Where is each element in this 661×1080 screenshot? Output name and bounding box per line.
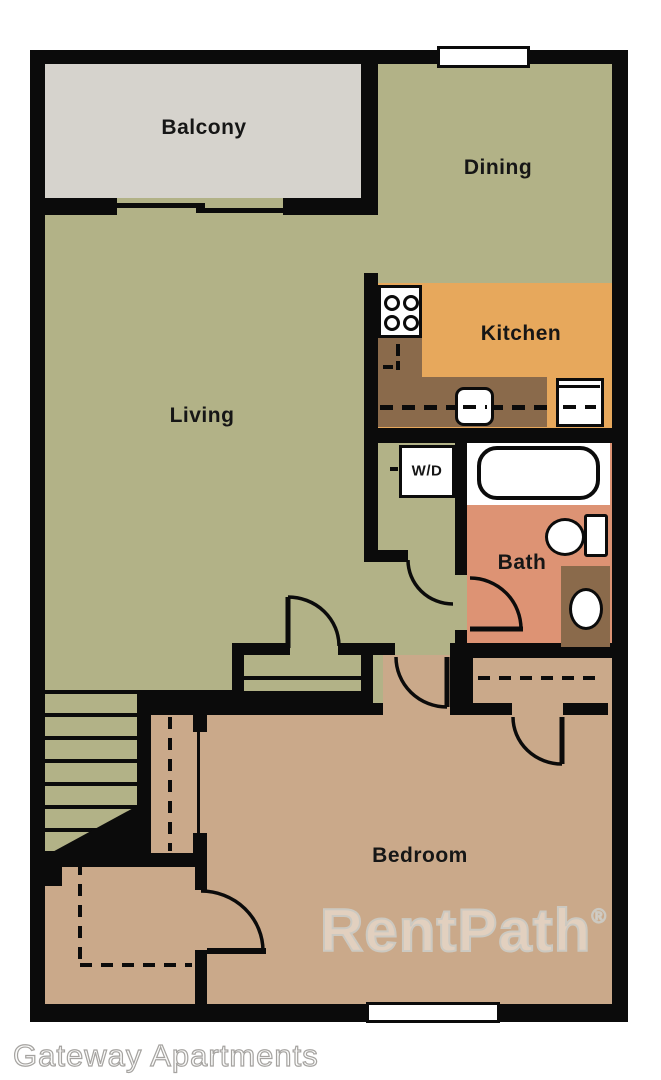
toilet-bowl-icon xyxy=(545,518,585,556)
bifold-stub-bottom xyxy=(193,833,207,853)
entry-dash-vertical xyxy=(78,863,82,966)
toilet-tank-icon xyxy=(584,514,608,557)
room-label-balcony: Balcony xyxy=(161,116,246,140)
wall-entry-stub xyxy=(45,867,62,886)
wall-kitchen-left xyxy=(364,273,378,443)
window xyxy=(366,1002,500,1023)
wall-balcony-bottom-left xyxy=(30,198,117,215)
wall-bedroom-closet-bottom-left xyxy=(462,703,512,715)
wall-bath-left-stub xyxy=(455,630,467,643)
counter-vertical xyxy=(378,338,422,427)
wall-balcony-bottom-right xyxy=(283,198,378,215)
wall-bottom xyxy=(30,1004,628,1022)
refrigerator-icon xyxy=(556,378,604,427)
refrigerator-dash xyxy=(563,405,596,409)
bifold-door-line xyxy=(197,732,200,833)
room-label-living: Living xyxy=(170,404,235,428)
wall-bedroom-closet-bottom-right xyxy=(563,703,608,715)
room-label-washer-dryer: W/D xyxy=(412,463,443,480)
strip-closet-dash xyxy=(168,717,172,851)
wall-entry-lower xyxy=(195,950,207,1004)
caption: Gateway Apartments xyxy=(13,1038,319,1074)
counter-dash-mark xyxy=(396,344,400,356)
burner-icon xyxy=(403,295,419,311)
stove-icon xyxy=(378,285,422,338)
wd-dash-left xyxy=(390,467,398,471)
registered-mark: ® xyxy=(591,906,607,928)
hall-closet-door-opening xyxy=(290,643,338,655)
hall-closet-interior xyxy=(244,655,361,691)
wd-dash-right xyxy=(456,467,464,471)
watermark-text: RentPath xyxy=(320,897,591,964)
hall-closet-rod xyxy=(244,676,361,680)
entry-dash-horizontal xyxy=(80,963,192,967)
window xyxy=(437,46,530,68)
wall-hall-stub xyxy=(373,643,395,655)
bifold-stub-top xyxy=(193,715,207,732)
burner-icon xyxy=(403,315,419,331)
wall-ledge xyxy=(137,690,244,703)
wall-top xyxy=(30,50,628,64)
counter-dash-mark xyxy=(396,361,400,370)
counter-dash-mark xyxy=(383,365,393,369)
wall-stairs-right xyxy=(137,690,151,867)
wall-bath-left xyxy=(455,443,467,575)
burner-icon xyxy=(384,295,400,311)
refrigerator-door-line xyxy=(559,385,600,388)
wall-entry-upper xyxy=(195,855,207,890)
wall-left xyxy=(30,50,45,1022)
wall-wd-stub xyxy=(364,550,408,562)
room-label-kitchen: Kitchen xyxy=(481,322,562,346)
wall-hall-bottom xyxy=(151,703,383,715)
floor-plan: Balcony Dining Kitchen Living W/D Bath B… xyxy=(0,0,661,1080)
bathtub-icon xyxy=(477,446,600,500)
wall-kitchen-bottom xyxy=(364,428,628,443)
sink-dash xyxy=(463,405,487,409)
burner-icon xyxy=(384,315,400,331)
wall-right xyxy=(612,50,628,1022)
vanity-sink-icon xyxy=(569,588,603,630)
wall-wd-left xyxy=(364,443,378,552)
room-label-bath: Bath xyxy=(498,551,547,575)
sliding-door-panel xyxy=(196,208,287,213)
sliding-door-panel xyxy=(113,203,205,208)
stairs xyxy=(45,690,137,853)
watermark: RentPath® xyxy=(320,896,607,965)
bedroom-closet-shelf-dash xyxy=(478,676,603,680)
wall-stairs-bottom xyxy=(30,853,207,867)
room-label-dining: Dining xyxy=(464,156,532,180)
wall-balcony-dining xyxy=(361,50,378,215)
room-label-bedroom: Bedroom xyxy=(372,844,468,868)
